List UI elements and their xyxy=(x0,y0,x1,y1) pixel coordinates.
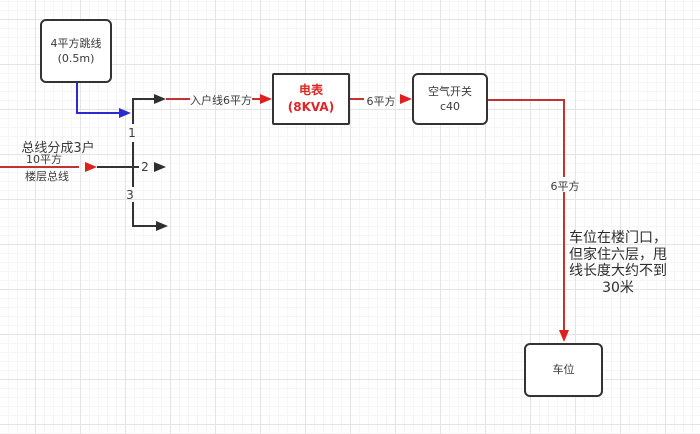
branch-trunk-segment-top xyxy=(132,98,134,124)
branch-trunk-segment-bottom xyxy=(132,202,134,227)
node-breaker: 空气开关 c40 xyxy=(412,73,488,125)
node-meter-label-line1: 电表 xyxy=(299,82,323,99)
bus-spec-label-line1: 10平方 xyxy=(20,151,68,167)
branch2-wire xyxy=(97,166,139,168)
node-breaker-label-line1: 空气开关 xyxy=(428,84,472,99)
breaker-parking-wire-label: 6平方 xyxy=(547,178,583,194)
branch3-elbow xyxy=(132,225,156,227)
meter-breaker-wire xyxy=(350,98,364,100)
node-meter: 电表 (8KVA) xyxy=(272,73,350,125)
bus-spec-label-line2: 楼层总线 xyxy=(22,168,72,184)
blue-wire-vertical xyxy=(76,83,78,113)
branch3-arrowhead xyxy=(156,221,168,231)
branch-number-3: 3 xyxy=(124,188,136,202)
node-jumper: 4平方跳线 (0.5m) xyxy=(40,19,112,83)
parking-note-line1: 车位在楼门口， xyxy=(560,230,676,247)
parking-note: 车位在楼门口， 但家住六层，甩 线长度大约不到 30米 xyxy=(560,230,676,296)
entry-wire-label: 入户线6平方 xyxy=(186,92,256,108)
branch2-arrowhead xyxy=(154,162,166,172)
node-parking-label-line1: 车位 xyxy=(553,362,575,377)
node-breaker-label-line2: c40 xyxy=(440,99,460,114)
breaker-parking-wire-vertical-top xyxy=(563,99,565,177)
parking-note-line4: 30米 xyxy=(560,280,676,297)
node-jumper-label-line2: (0.5m) xyxy=(58,51,95,66)
entry-wire-arrowhead xyxy=(260,94,272,104)
branch1-arrowhead xyxy=(154,94,166,104)
branch-number-1: 1 xyxy=(126,126,138,140)
blue-wire-horizontal xyxy=(76,112,120,114)
breaker-parking-arrowhead xyxy=(559,330,569,342)
branch1-elbow xyxy=(132,98,154,100)
diagram-canvas: 4平方跳线 (0.5m) 电表 (8KVA) 空气开关 c40 车位 1 2 3 xyxy=(0,0,700,434)
meter-breaker-wire-label: 6平方 xyxy=(363,93,399,109)
node-parking: 车位 xyxy=(524,343,603,397)
breaker-parking-wire-horizontal xyxy=(488,99,565,101)
blue-wire-arrowhead xyxy=(119,108,131,118)
parking-note-line3: 线长度大约不到 xyxy=(560,263,676,280)
node-jumper-label-line1: 4平方跳线 xyxy=(51,36,102,51)
branch-number-2: 2 xyxy=(139,160,151,174)
meter-breaker-arrowhead xyxy=(400,94,412,104)
node-meter-label-line2: (8KVA) xyxy=(288,99,334,116)
branch-trunk-segment-middle xyxy=(132,142,134,187)
parking-note-line2: 但家住六层，甩 xyxy=(560,247,676,264)
bus-wire-arrowhead xyxy=(85,162,97,172)
